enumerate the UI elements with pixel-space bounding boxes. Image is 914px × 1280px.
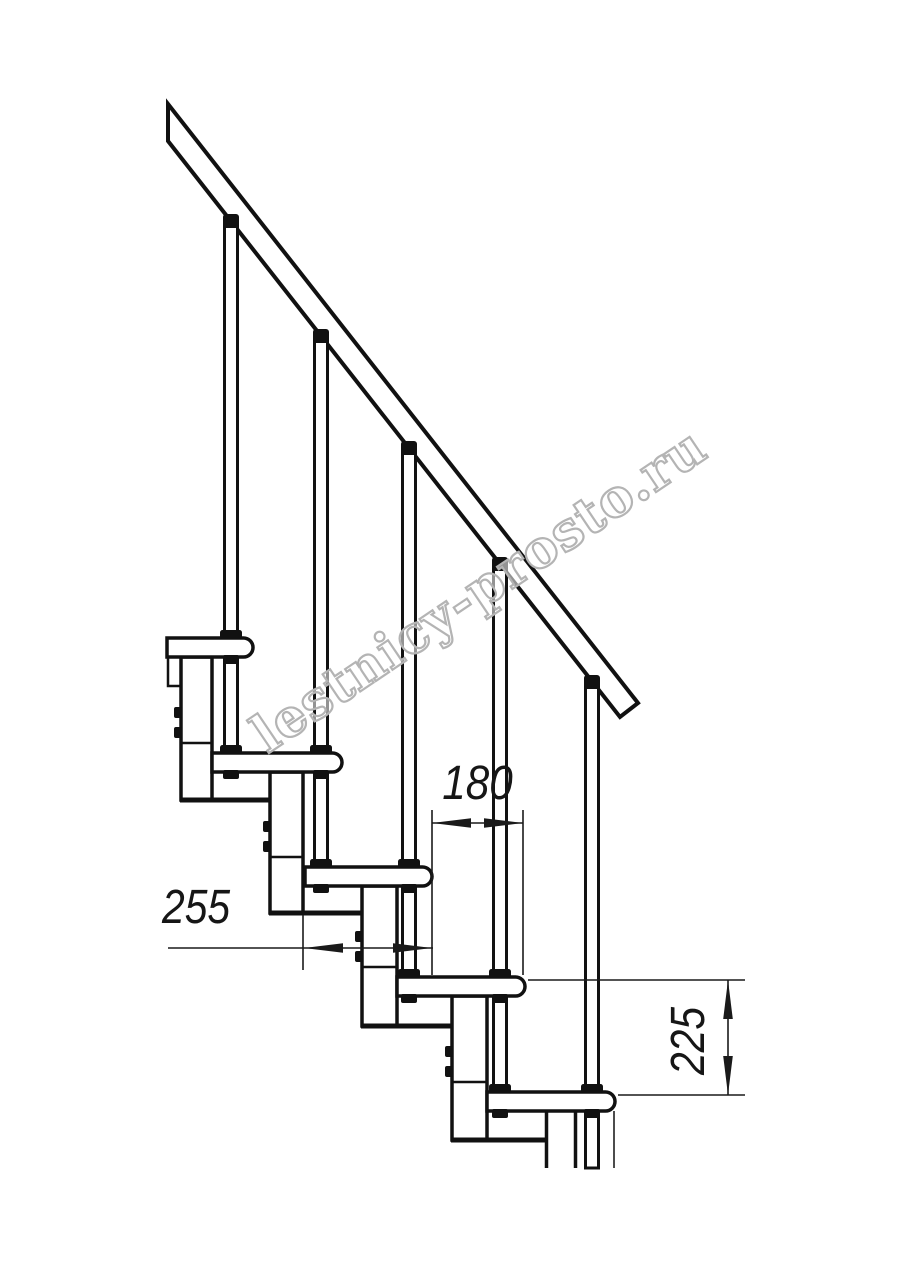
rail-connector-1 bbox=[223, 214, 239, 228]
nut-icon bbox=[401, 994, 417, 1003]
baluster-3 bbox=[403, 448, 416, 977]
module-4 bbox=[452, 996, 487, 1140]
tread-4 bbox=[397, 977, 525, 996]
module-3 bbox=[362, 886, 397, 1026]
collar-icon bbox=[310, 745, 332, 754]
dimension-label-tread-depth: 255 bbox=[162, 884, 230, 932]
bolt-icon bbox=[445, 1066, 453, 1077]
bolt-icon bbox=[263, 841, 271, 852]
baluster-2 bbox=[315, 336, 328, 867]
technical-drawing-canvas: lestnicy-prosto.ru 255 180 225 bbox=[0, 0, 914, 1280]
bolt-icon bbox=[263, 821, 271, 832]
nut-icon bbox=[492, 994, 508, 1003]
rail-connector-2 bbox=[313, 329, 329, 343]
nut-icon bbox=[223, 655, 239, 664]
dimension-180 bbox=[432, 810, 523, 975]
bolt-icon bbox=[174, 727, 182, 738]
baluster-1 bbox=[225, 221, 238, 753]
tread-3 bbox=[305, 867, 432, 886]
collar-icon bbox=[398, 969, 420, 978]
dimension-label-step-rise: 225 bbox=[665, 991, 713, 1091]
bolt-icon bbox=[174, 707, 182, 718]
tread-1 bbox=[167, 638, 253, 657]
collar-icon bbox=[220, 745, 242, 754]
collar-icon bbox=[310, 859, 332, 868]
collar-icon bbox=[581, 1084, 603, 1093]
collar-icon bbox=[489, 1084, 511, 1093]
nut-icon bbox=[313, 884, 329, 893]
tread-5 bbox=[487, 1092, 615, 1111]
collar-icon bbox=[398, 859, 420, 868]
collar-icon bbox=[489, 969, 511, 978]
arrow-left-icon bbox=[432, 818, 471, 828]
module-1 bbox=[181, 657, 212, 800]
wall-bracket-detail bbox=[168, 657, 181, 686]
arrow-left-icon bbox=[304, 943, 343, 953]
arrow-down-icon bbox=[723, 1056, 733, 1095]
nut-icon bbox=[492, 1109, 508, 1118]
bolt-icon bbox=[445, 1046, 453, 1057]
dimension-label-step-run: 180 bbox=[435, 760, 520, 808]
nut-icon bbox=[313, 770, 329, 779]
module-2 bbox=[270, 772, 303, 913]
bolt-icon bbox=[355, 931, 363, 942]
nut-icon bbox=[401, 884, 417, 893]
bolt-icon bbox=[355, 951, 363, 962]
rail-connector-3 bbox=[401, 441, 417, 455]
baluster-4 bbox=[494, 564, 507, 1092]
rail-connector-5 bbox=[584, 675, 600, 689]
nut-icon bbox=[584, 1109, 600, 1118]
nut-icon bbox=[223, 770, 239, 779]
collar-icon bbox=[220, 630, 242, 639]
arrow-up-icon bbox=[723, 980, 733, 1019]
